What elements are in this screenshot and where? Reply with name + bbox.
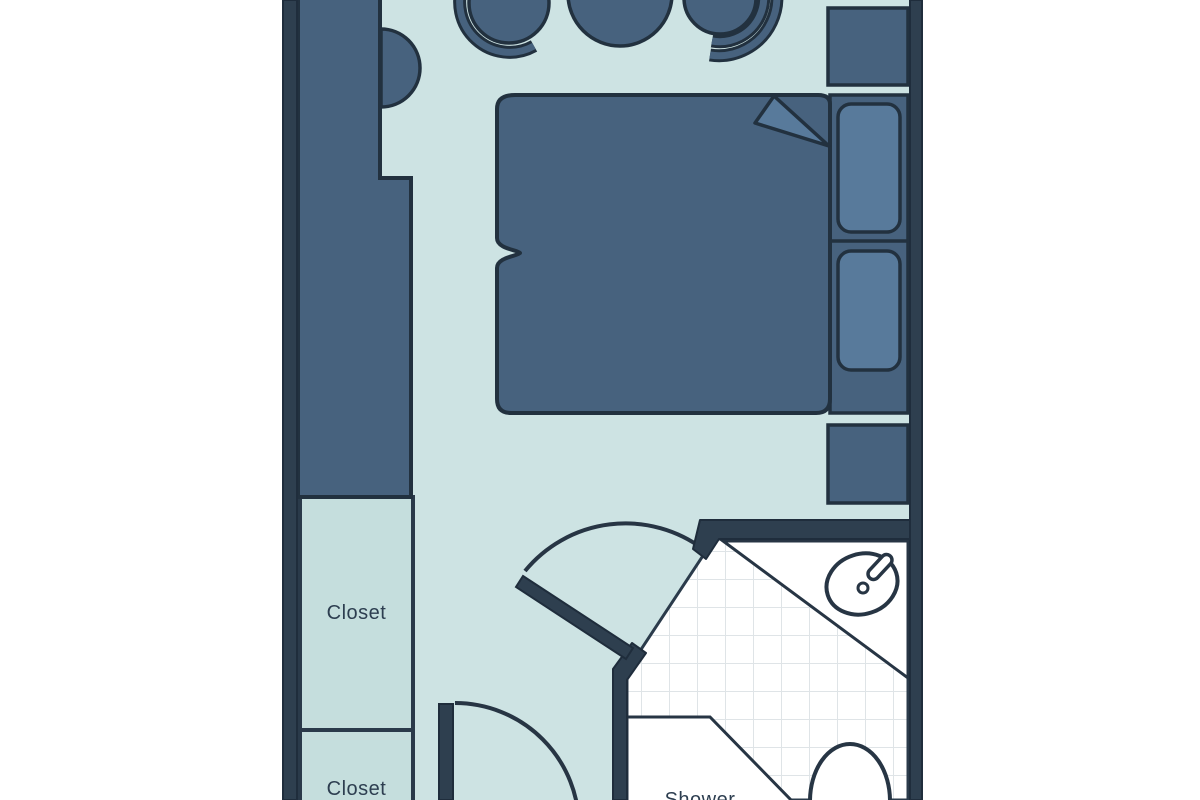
- nightstand-bottom: [828, 425, 908, 503]
- wall-left: [283, 0, 297, 800]
- drain-icon: [858, 583, 868, 593]
- pillow-bottom: [838, 251, 900, 370]
- closet-2: [300, 730, 413, 800]
- floor-plan-stage: Closet Closet Shower: [0, 0, 1200, 800]
- pillow-top: [838, 104, 900, 232]
- nightstand-top: [828, 8, 908, 85]
- wall-right: [910, 0, 922, 800]
- entry-door-leaf: [439, 704, 453, 800]
- floor-plan-drawing: [0, 0, 1200, 800]
- double-bed-mattress: [497, 95, 830, 413]
- closet-1: [300, 497, 413, 730]
